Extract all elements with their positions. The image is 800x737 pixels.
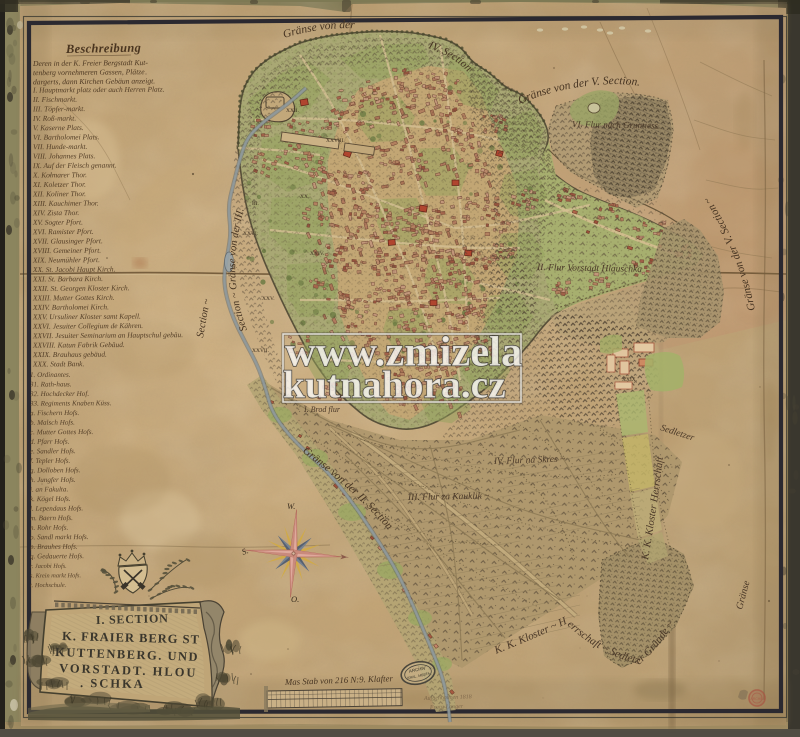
svg-text:g. Dolloben Hofs.: g. Dolloben Hofs. xyxy=(30,466,81,474)
svg-text:ARCHIV: ARCHIV xyxy=(750,697,764,701)
svg-text:XXVI. Jesuiter Collegium de Kä: XXVI. Jesuiter Collegium de Kähren. xyxy=(32,321,143,331)
svg-text:II. Fischmarkt.: II. Fischmarkt. xyxy=(32,95,77,104)
svg-text:XX. St. Jacobi Haupt Kirch.: XX. St. Jacobi Haupt Kirch. xyxy=(32,264,116,274)
svg-text:XXI. St. Barbara Kirch.: XXI. St. Barbara Kirch. xyxy=(32,274,103,283)
svg-text:t. Hochschule.: t. Hochschule. xyxy=(30,582,66,589)
svg-text:e. Sandler Hofs.: e. Sandler Hofs. xyxy=(30,447,76,455)
svg-text:p. Brauhes Hofs.: p. Brauhes Hofs. xyxy=(29,543,78,551)
svg-text:I. Hauptmarkt platz oder auch: I. Hauptmarkt platz oder auch Herren Pla… xyxy=(32,85,165,95)
svg-text:XIII. Kauchimer Thor.: XIII. Kauchimer Thor. xyxy=(32,198,99,207)
svg-text:XVI. Ramister Pfort.: XVI. Ramister Pfort. xyxy=(32,227,94,236)
svg-text:b. Malsch Hofs.: b. Malsch Hofs. xyxy=(30,419,75,427)
svg-text:VI. Bartholomei Plats.: VI. Bartholomei Plats. xyxy=(33,132,100,141)
svg-text:VIII. Johannes Plats.: VIII. Johannes Plats. xyxy=(33,151,96,160)
svg-text:c. Mutter Gottes Hofs.: c. Mutter Gottes Hofs. xyxy=(30,428,94,436)
svg-text:XIX. Neumühler Pfort.: XIX. Neumühler Pfort. xyxy=(32,255,100,264)
svg-text:XXVIII. Katun Fabrik Gebäud.: XXVIII. Katun Fabrik Gebäud. xyxy=(32,340,125,350)
svg-text:XXIX. Brauhaus gebäud.: XXIX. Brauhaus gebäud. xyxy=(32,350,107,360)
svg-text:d. Pfarr Hofs.: d. Pfarr Hofs. xyxy=(30,438,70,446)
svg-text:XV. Sogter Pfort.: XV. Sogter Pfort. xyxy=(32,217,83,226)
svg-text:W.: W. xyxy=(287,501,295,511)
svg-text:XXX. Stadt Bank.: XXX. Stadt Bank. xyxy=(32,359,85,368)
svg-text:31. Rath-haus.: 31. Rath-haus. xyxy=(29,380,72,388)
svg-text:II. Flur Vorstadt Hlauschka: II. Flur Vorstadt Hlauschka xyxy=(536,263,642,275)
svg-text:VI. Flur nach Gruntiess.: VI. Flur nach Gruntiess. xyxy=(572,119,660,131)
svg-text:O.: O. xyxy=(291,594,299,604)
svg-text:l. Lependaus Hofs.: l. Lependaus Hofs. xyxy=(30,504,83,512)
svg-text:XXVI.: XXVI. xyxy=(243,231,259,237)
svg-text:IX. Auf der Fleisch genannt.: IX. Auf der Fleisch genannt. xyxy=(32,161,117,171)
svg-text:III. Töpfer-markt.: III. Töpfer-markt. xyxy=(32,104,85,113)
svg-text:I. SECTION: I. SECTION xyxy=(96,611,169,627)
svg-text:Beschreibung: Beschreibung xyxy=(65,41,141,56)
svg-text:III.: III. xyxy=(252,201,259,207)
svg-text:IV. Roß-markt.: IV. Roß-markt. xyxy=(32,114,76,123)
svg-text:XIV. Zista Thor.: XIV. Zista Thor. xyxy=(32,208,79,217)
svg-text:XVII. Glausinger Pfort.: XVII. Glausinger Pfort. xyxy=(32,236,103,245)
svg-text:XXVII. Jesuiter Seminarium an: XXVII. Jesuiter Seminarium an Hauptschul… xyxy=(32,330,183,340)
svg-text:XXIV. Bartholomei Kirch.: XXIV. Bartholomei Kirch. xyxy=(32,302,109,312)
svg-text:s. Krein markt Hofs.: s. Krein markt Hofs. xyxy=(30,572,81,579)
svg-text:V. Kaserne Plats.: V. Kaserne Plats. xyxy=(33,123,84,132)
svg-text:XI. Koletzer Thor.: XI. Koletzer Thor. xyxy=(32,180,86,189)
svg-text:m. Baern Hofs.: m. Baern Hofs. xyxy=(30,514,73,522)
svg-text:r. Jacobi Hofs.: r. Jacobi Hofs. xyxy=(30,563,67,570)
svg-text:k. Kögel Hofs.: k. Kögel Hofs. xyxy=(30,495,71,503)
svg-text:XX.: XX. xyxy=(300,194,310,200)
svg-text:XXIV.: XXIV. xyxy=(310,251,325,257)
svg-text:kutnahora.cz: kutnahora.cz xyxy=(283,363,506,407)
svg-text:XXII.: XXII. xyxy=(286,108,300,114)
svg-text:XXIX.: XXIX. xyxy=(622,377,638,383)
svg-text:XXIII. Mutter Gottes Kirch.: XXIII. Mutter Gottes Kirch. xyxy=(32,293,115,303)
svg-text:q. Gedauerte Hofs.: q. Gedauerte Hofs. xyxy=(30,552,84,560)
svg-text:VII. Hunde-markt.: VII. Hunde-markt. xyxy=(33,142,88,151)
svg-text:1. Ordinantes.: 1. Ordinantes. xyxy=(30,371,71,379)
svg-text:n. Rohr Hofs.: n. Rohr Hofs. xyxy=(30,524,68,532)
svg-text:a. Fischern Hofs.: a. Fischern Hofs. xyxy=(30,409,80,417)
svg-text:XXV.: XXV. xyxy=(262,296,275,302)
svg-text:X. Kolmarer Thor.: X. Kolmarer Thor. xyxy=(32,170,87,179)
svg-text:33. Regiments Knaben Küss.: 33. Regiments Knaben Küss. xyxy=(29,399,112,407)
svg-text:XXVII.: XXVII. xyxy=(252,348,270,354)
svg-text:o. Sandl markt Hofs.: o. Sandl markt Hofs. xyxy=(30,533,89,541)
svg-text:i. an Fakulta.: i. an Fakulta. xyxy=(30,485,68,493)
svg-text:XXVIII.: XXVIII. xyxy=(326,138,345,144)
svg-text:XXV. Ursuliner Kloster samt Ka: XXV. Ursuliner Kloster samt Kapell. xyxy=(32,312,141,322)
svg-text:XVIII. Gemeiner Pfort.: XVIII. Gemeiner Pfort. xyxy=(32,246,101,255)
svg-text:f. Tepler Hofs.: f. Tepler Hofs. xyxy=(30,457,71,465)
svg-text:32. Hochdecker Hof.: 32. Hochdecker Hof. xyxy=(29,390,89,398)
svg-text:II.: II. xyxy=(232,264,238,270)
svg-text:Franz Langer: Franz Langer xyxy=(429,704,464,711)
svg-text:XII. Koliner Thor.: XII. Koliner Thor. xyxy=(32,189,86,198)
svg-text:h. Jungfer Hofs.: h. Jungfer Hofs. xyxy=(30,476,76,484)
svg-text:III. Flur za Kauklik ~: III. Flur za Kauklik ~ xyxy=(407,492,490,503)
svg-text:. SCHKA: . SCHKA xyxy=(80,676,145,691)
svg-text:XXII. St. Georgen Kloster Kirc: XXII. St. Georgen Kloster Kirch. xyxy=(32,283,130,293)
